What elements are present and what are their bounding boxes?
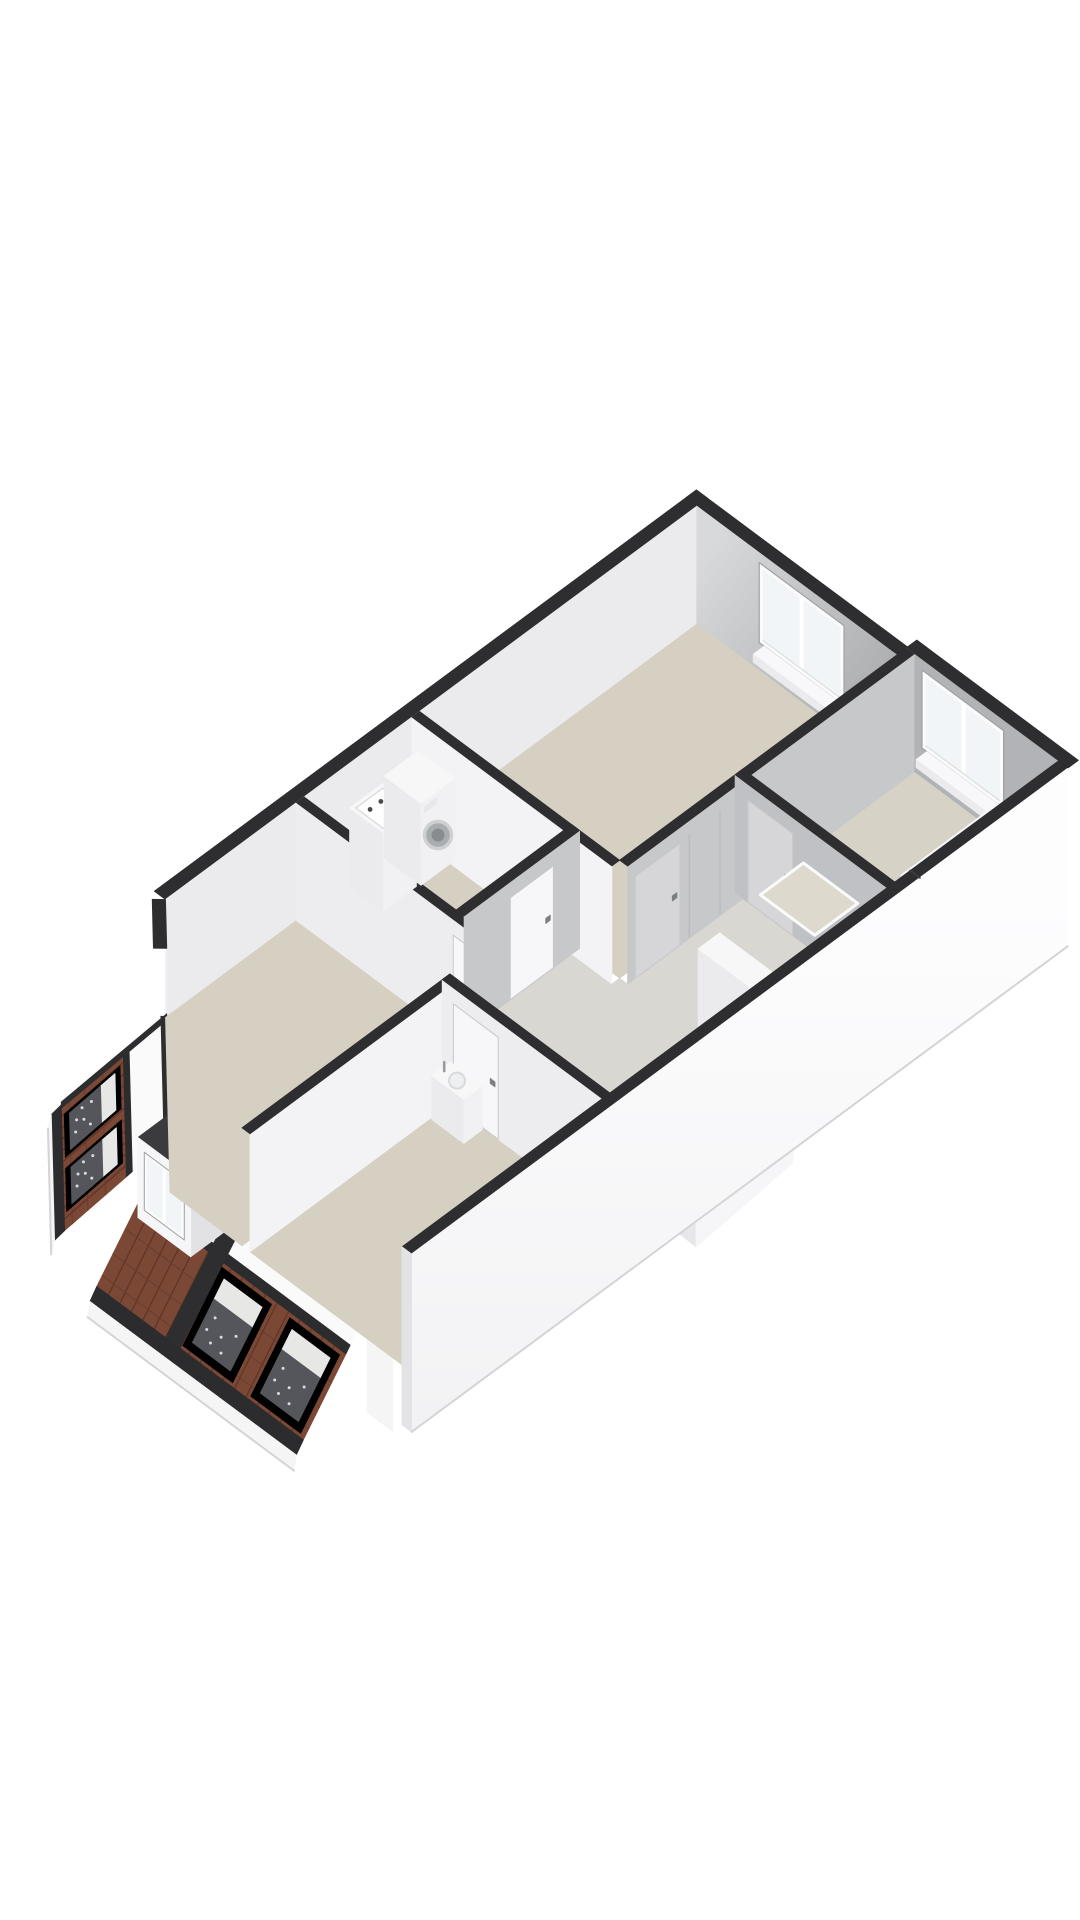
- chamfer-wall-top: [152, 899, 167, 948]
- floor-plan-3d: [0, 0, 1080, 1920]
- se-wall-end-face: [402, 1247, 412, 1432]
- washing-machine: [384, 751, 455, 885]
- scene: [48, 490, 1078, 1471]
- floorplan-viewport: [0, 0, 1080, 1920]
